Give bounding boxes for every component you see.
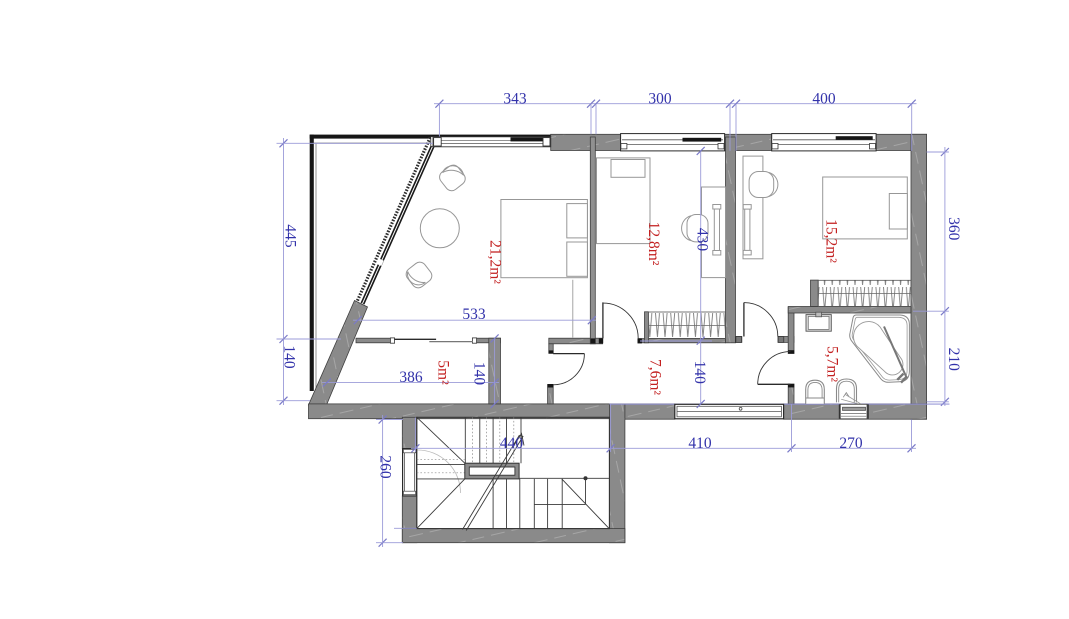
svg-text:410: 410 (688, 435, 712, 452)
svg-text:300: 300 (648, 90, 672, 107)
svg-text:386: 386 (399, 369, 423, 386)
svg-text:210: 210 (945, 348, 962, 372)
svg-text:445: 445 (282, 224, 299, 248)
svg-text:7,6m²: 7,6m² (647, 359, 664, 395)
svg-text:140: 140 (281, 345, 298, 369)
svg-text:260: 260 (377, 455, 394, 479)
svg-text:343: 343 (503, 90, 527, 107)
svg-text:140: 140 (471, 362, 488, 386)
svg-text:15,2m²: 15,2m² (823, 219, 840, 263)
svg-text:5,7m²: 5,7m² (824, 346, 841, 382)
svg-text:533: 533 (462, 306, 486, 323)
svg-text:140: 140 (691, 361, 708, 385)
svg-text:12,8m²: 12,8m² (645, 222, 662, 266)
svg-text:430: 430 (694, 228, 711, 252)
svg-text:440: 440 (500, 435, 524, 452)
svg-text:400: 400 (812, 90, 836, 107)
svg-text:360: 360 (945, 217, 962, 241)
svg-text:21,2m²: 21,2m² (487, 240, 504, 284)
svg-text:270: 270 (839, 435, 863, 452)
svg-text:5m²: 5m² (435, 360, 452, 385)
